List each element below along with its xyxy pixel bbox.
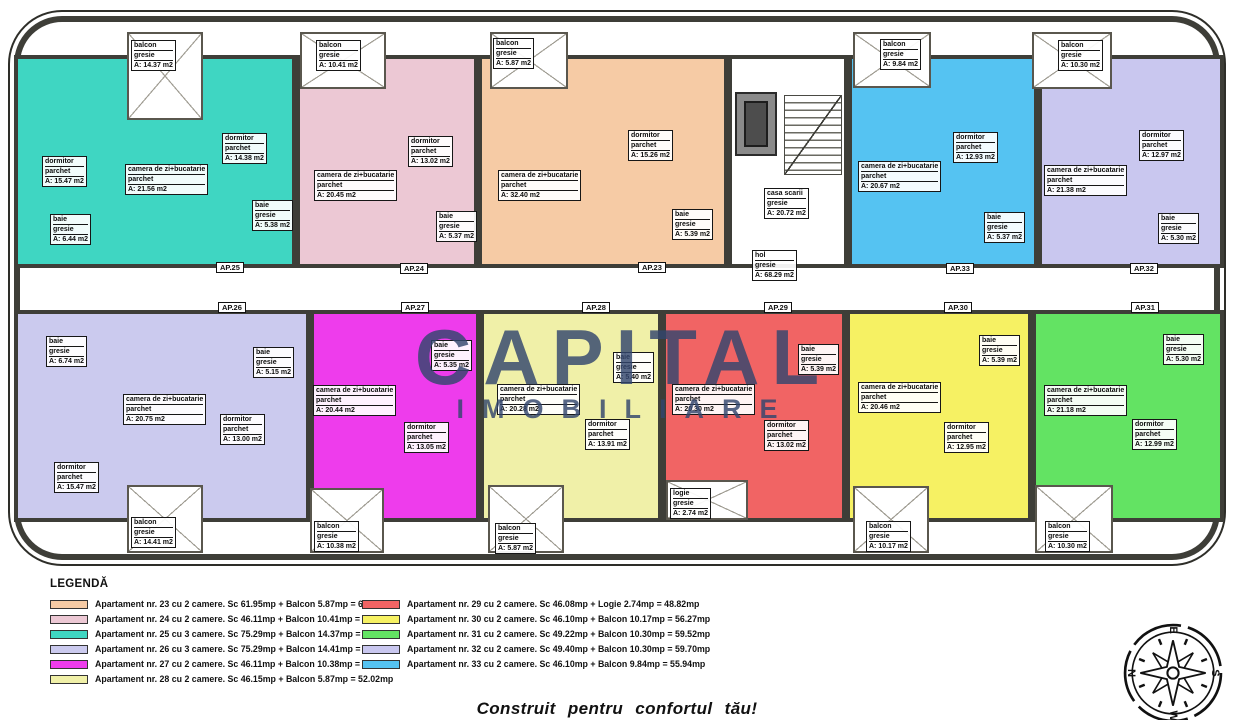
legend-swatch-26 bbox=[50, 645, 88, 654]
legend-swatch-23 bbox=[50, 600, 88, 609]
room-label: dormitorparchetA: 15.47 m2 bbox=[42, 156, 87, 187]
room-label: dormitorparchetA: 13.02 m2 bbox=[408, 136, 453, 167]
stair-core bbox=[728, 55, 848, 268]
slogan: Construit pentru confortul tău! bbox=[0, 699, 1234, 719]
balcony-label: balcongresieA: 9.84 m2 bbox=[880, 39, 921, 70]
legend-item-29: Apartament nr. 29 cu 2 camere. Sc 46.08m… bbox=[362, 599, 674, 609]
balcony-label: balcongresieA: 14.37 m2 bbox=[131, 40, 176, 71]
room-label: camera de zi+bucatarieparchetA: 20.45 m2 bbox=[314, 170, 397, 201]
room-label: camera de zi+bucatarieparchetA: 21.38 m2 bbox=[1044, 165, 1127, 196]
legend-swatch-31 bbox=[362, 630, 400, 639]
legend: LEGENDĂ Apartament nr. 23 cu 2 camere. S… bbox=[50, 578, 674, 689]
legend-swatch-32 bbox=[362, 645, 400, 654]
compass-letter-south: S bbox=[1209, 669, 1221, 677]
legend-title: LEGENDĂ bbox=[50, 578, 674, 590]
balcony-label: balcongresieA: 5.87 m2 bbox=[495, 523, 536, 554]
legend-item-25: Apartament nr. 25 cu 3 camere. Sc 75.29m… bbox=[50, 629, 362, 639]
legend-item-33: Apartament nr. 33 cu 2 camere. Sc 46.10m… bbox=[362, 659, 674, 669]
room-label: camera de zi+bucatarieparchetA: 21.56 m2 bbox=[125, 164, 208, 195]
room-label: baiegresieA: 5.37 m2 bbox=[984, 212, 1025, 243]
room-label: baiegresieA: 5.30 m2 bbox=[1158, 213, 1199, 244]
legend-swatch-27 bbox=[50, 660, 88, 669]
room-label-hol: holgresieA: 68.29 m2 bbox=[752, 250, 797, 281]
balcony-label: balcongresieA: 10.38 m2 bbox=[314, 521, 359, 552]
balcony-label: balcongresieA: 10.30 m2 bbox=[1058, 40, 1103, 71]
legend-item-23: Apartament nr. 23 cu 2 camere. Sc 61.95m… bbox=[50, 599, 362, 609]
room-label: dormitorparchetA: 15.47 m2 bbox=[54, 462, 99, 493]
room-label: dormitorparchetA: 12.93 m2 bbox=[953, 132, 998, 163]
room-label: dormitorparchetA: 12.97 m2 bbox=[1139, 130, 1184, 161]
room-label: baiegresieA: 5.38 m2 bbox=[252, 200, 293, 231]
balcony-label: balcongresieA: 14.41 m2 bbox=[131, 517, 176, 548]
balcony-label: balcongresieA: 10.30 m2 bbox=[1045, 521, 1090, 552]
watermark-imobiliare: IMOBILIARE bbox=[0, 394, 1234, 425]
legend-swatch-33 bbox=[362, 660, 400, 669]
room-label-casa-scarii: casa scariigresieA: 20.72 m2 bbox=[764, 188, 809, 219]
balcony-label: balcongresieA: 5.87 m2 bbox=[493, 38, 534, 69]
apartment-tag-32: AP.32 bbox=[1130, 263, 1158, 274]
room-label: dormitorparchetA: 12.95 m2 bbox=[944, 422, 989, 453]
apartment-tag-33: AP.33 bbox=[946, 263, 974, 274]
apartment-tag-24: AP.24 bbox=[400, 263, 428, 274]
room-label: camera de zi+bucatarieparchetA: 20.67 m2 bbox=[858, 161, 941, 192]
stairs-icon bbox=[784, 95, 842, 175]
compass-letter-east: E bbox=[1167, 626, 1179, 634]
legend-swatch-28 bbox=[50, 675, 88, 684]
loggia-label: logiegresieA: 2.74 m2 bbox=[670, 488, 711, 519]
balcony-label: balcongresieA: 10.17 m2 bbox=[866, 521, 911, 552]
room-label: baiegresieA: 5.39 m2 bbox=[672, 209, 713, 240]
room-label: dormitorparchetA: 14.38 m2 bbox=[222, 133, 267, 164]
legend-item-24: Apartament nr. 24 cu 2 camere. Sc 46.11m… bbox=[50, 614, 362, 624]
room-label: camera de zi+bucatarieparchetA: 32.40 m2 bbox=[498, 170, 581, 201]
balcony-label: balcongresieA: 10.41 m2 bbox=[316, 40, 361, 71]
apartment-tag-25: AP.25 bbox=[216, 262, 244, 273]
legend-swatch-29 bbox=[362, 600, 400, 609]
legend-item-30: Apartament nr. 30 cu 2 camere. Sc 46.10m… bbox=[362, 614, 674, 624]
legend-item-28: Apartament nr. 28 cu 2 camere. Sc 46.15m… bbox=[50, 674, 362, 684]
legend-swatch-24 bbox=[50, 615, 88, 624]
compass-letter-north: N bbox=[1125, 669, 1137, 677]
room-label: dormitorparchetA: 15.26 m2 bbox=[628, 130, 673, 161]
apartment-tag-23: AP.23 bbox=[638, 262, 666, 273]
watermark-capital: CAPITAL bbox=[0, 312, 1234, 403]
legend-swatch-25 bbox=[50, 630, 88, 639]
legend-item-31: Apartament nr. 31 cu 2 camere. Sc 49.22m… bbox=[362, 629, 674, 639]
elevator-icon bbox=[735, 92, 777, 156]
legend-swatch-30 bbox=[362, 615, 400, 624]
room-label: dormitorparchetA: 13.05 m2 bbox=[404, 422, 449, 453]
legend-item-32: Apartament nr. 32 cu 2 camere. Sc 49.40m… bbox=[362, 644, 674, 654]
legend-item-26: Apartament nr. 26 cu 3 camere. Sc 75.29m… bbox=[50, 644, 362, 654]
room-label: baiegresieA: 5.37 m2 bbox=[436, 211, 477, 242]
room-label: baiegresieA: 6.44 m2 bbox=[50, 214, 91, 245]
legend-item-27: Apartament nr. 27 cu 2 camere. Sc 46.11m… bbox=[50, 659, 362, 669]
